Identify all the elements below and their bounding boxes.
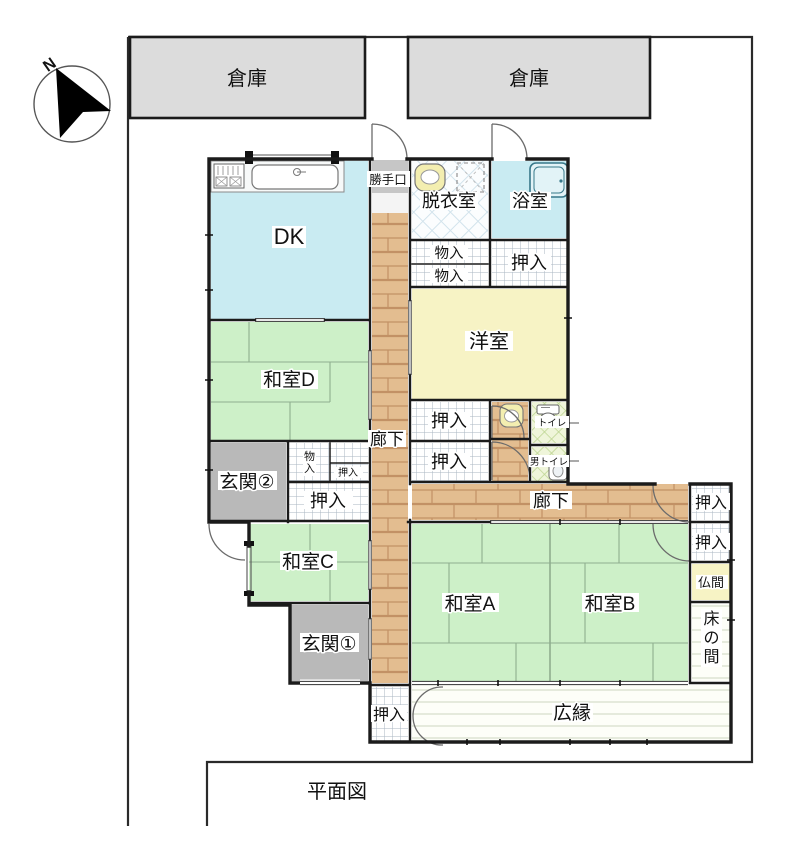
closet-label-mononyu1: 物入 <box>435 245 464 262</box>
room-label-katteguchi: 勝手口 <box>369 172 407 187</box>
closet-label-mononyu-small: 物入 <box>304 449 315 475</box>
stove-icon <box>214 164 244 188</box>
closet-label-oshiire-e1: 押入 <box>695 494 727 512</box>
room-label-genkan1: 玄関① <box>301 633 356 655</box>
corridor-label-south: 廊下 <box>533 491 569 511</box>
room-label-youshitsu: 洋室 <box>469 330 509 353</box>
room-label-washitsu-d: 和室D <box>263 369 315 391</box>
room-label-genkan2: 玄関② <box>219 471 274 493</box>
room-label-washitsu-c: 和室C <box>282 551 334 573</box>
page-title: 平面図 <box>307 781 367 803</box>
back-door-arc <box>372 124 407 159</box>
room-label-mens-toilet: 男トイレ <box>530 457 568 468</box>
room-label-toilet: トイレ <box>538 418 567 429</box>
closet-label-oshiire-w2: 押入 <box>431 452 467 472</box>
closet-label-mononyu2: 物入 <box>435 268 464 285</box>
closet-label-oshiire-small: 押入 <box>338 466 358 479</box>
storage-left: 倉庫 <box>130 37 365 118</box>
north-compass-icon: N <box>34 55 111 142</box>
room-label-butsuma: 仏間 <box>698 575 724 590</box>
room-label-dk: DK <box>274 224 305 249</box>
floor-plan-page: 倉庫 倉庫 N <box>0 0 799 863</box>
katteguchi-landing <box>372 193 408 213</box>
storage-right: 倉庫 <box>408 37 650 118</box>
room-label-washitsu-b: 和室B <box>585 593 636 615</box>
room-label-hiroen: 広縁 <box>553 702 591 724</box>
closet-label-oshiire-s: 押入 <box>373 706 405 724</box>
floor-plan-drawing: 倉庫 倉庫 N <box>0 0 799 863</box>
kitchen-sink-icon <box>252 165 338 189</box>
closet-label-oshiire-bath: 押入 <box>511 253 547 273</box>
storage-right-label: 倉庫 <box>509 67 549 90</box>
washbasin-icon <box>415 164 445 191</box>
closet-label-oshiire-e2: 押入 <box>695 534 727 552</box>
bath-door-arc <box>492 124 527 159</box>
storage-left-label: 倉庫 <box>227 67 267 90</box>
corridor-label-west: 廊下 <box>370 430 404 449</box>
room-label-washitsu-a: 和室A <box>445 593 496 615</box>
closet-label-oshiire-mid: 押入 <box>310 491 346 511</box>
room-label-yokushitsu: 浴室 <box>512 191 548 211</box>
room-label-datsuishitsu: 脱衣室 <box>422 191 476 211</box>
room-label-tokonoma: 床の間 <box>703 610 719 666</box>
closet-label-oshiire-w1: 押入 <box>431 411 467 431</box>
genkan2-door-arc <box>209 524 245 560</box>
